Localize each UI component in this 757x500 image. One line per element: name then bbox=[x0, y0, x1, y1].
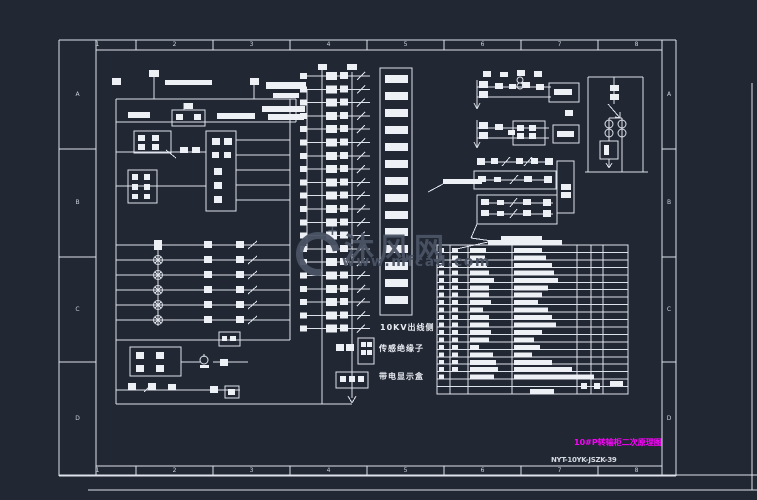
zone-label-left-D: D bbox=[59, 414, 96, 424]
zone-label-bottom-7: 7 bbox=[521, 466, 598, 476]
zone-label-bottom-4: 4 bbox=[290, 466, 367, 476]
zone-label-right-A: A bbox=[662, 90, 676, 100]
label-sensor-insulator: 传感绝缘子 bbox=[379, 343, 424, 354]
zone-label-top-8: 8 bbox=[598, 40, 675, 50]
zone-label-top-6: 6 bbox=[444, 40, 521, 50]
watermark: + 沐风网 www.mfcad.com bbox=[290, 222, 490, 282]
zone-label-left-B: B bbox=[59, 198, 96, 208]
watermark-logo-icon bbox=[287, 223, 348, 284]
zone-label-right-D: D bbox=[662, 414, 676, 424]
drawing-number: NYT-10YK-JSZK-39 bbox=[551, 456, 617, 464]
zone-label-right-B: B bbox=[662, 198, 676, 208]
label-live-display-box: 带电显示盒 bbox=[379, 371, 424, 382]
cad-viewer-canvas: 1122334455667788AABBCCDD 10KV出线侧 传感绝缘子 带… bbox=[0, 0, 757, 500]
watermark-logo-plus: + bbox=[327, 224, 338, 239]
zone-label-bottom-8: 8 bbox=[598, 466, 675, 476]
zone-label-bottom-1: 1 bbox=[59, 466, 136, 476]
single-line-diagram bbox=[585, 77, 648, 172]
zone-label-top-7: 7 bbox=[521, 40, 598, 50]
zone-label-top-3: 3 bbox=[213, 40, 290, 50]
zone-label-left-A: A bbox=[59, 90, 96, 100]
drawing-title: 10#P转输柜二次原理图 bbox=[574, 437, 662, 448]
zone-label-bottom-5: 5 bbox=[367, 466, 444, 476]
watermark-site-url: www.mfcad.com bbox=[342, 254, 491, 270]
zone-label-top-5: 5 bbox=[367, 40, 444, 50]
zone-label-top-1: 1 bbox=[59, 40, 136, 50]
zone-label-left-C: C bbox=[59, 305, 96, 315]
zone-label-bottom-2: 2 bbox=[136, 466, 213, 476]
zone-label-bottom-3: 3 bbox=[213, 466, 290, 476]
zone-label-bottom-6: 6 bbox=[444, 466, 521, 476]
zone-label-right-C: C bbox=[662, 305, 676, 315]
zone-label-top-4: 4 bbox=[290, 40, 367, 50]
label-10kv-outgoing-side: 10KV出线侧 bbox=[380, 322, 435, 333]
zone-label-top-2: 2 bbox=[136, 40, 213, 50]
relay-contact-area bbox=[428, 70, 579, 241]
